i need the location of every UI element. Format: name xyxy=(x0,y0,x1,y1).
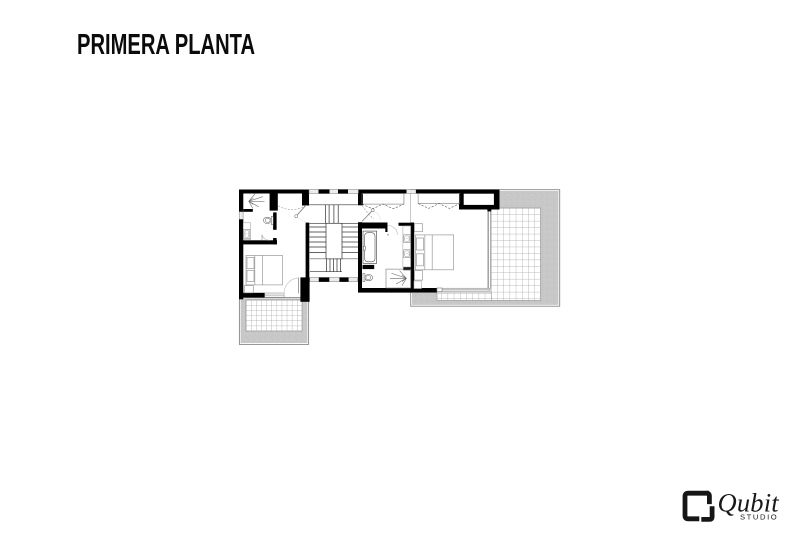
svg-text:STUDIO: STUDIO xyxy=(740,513,778,522)
